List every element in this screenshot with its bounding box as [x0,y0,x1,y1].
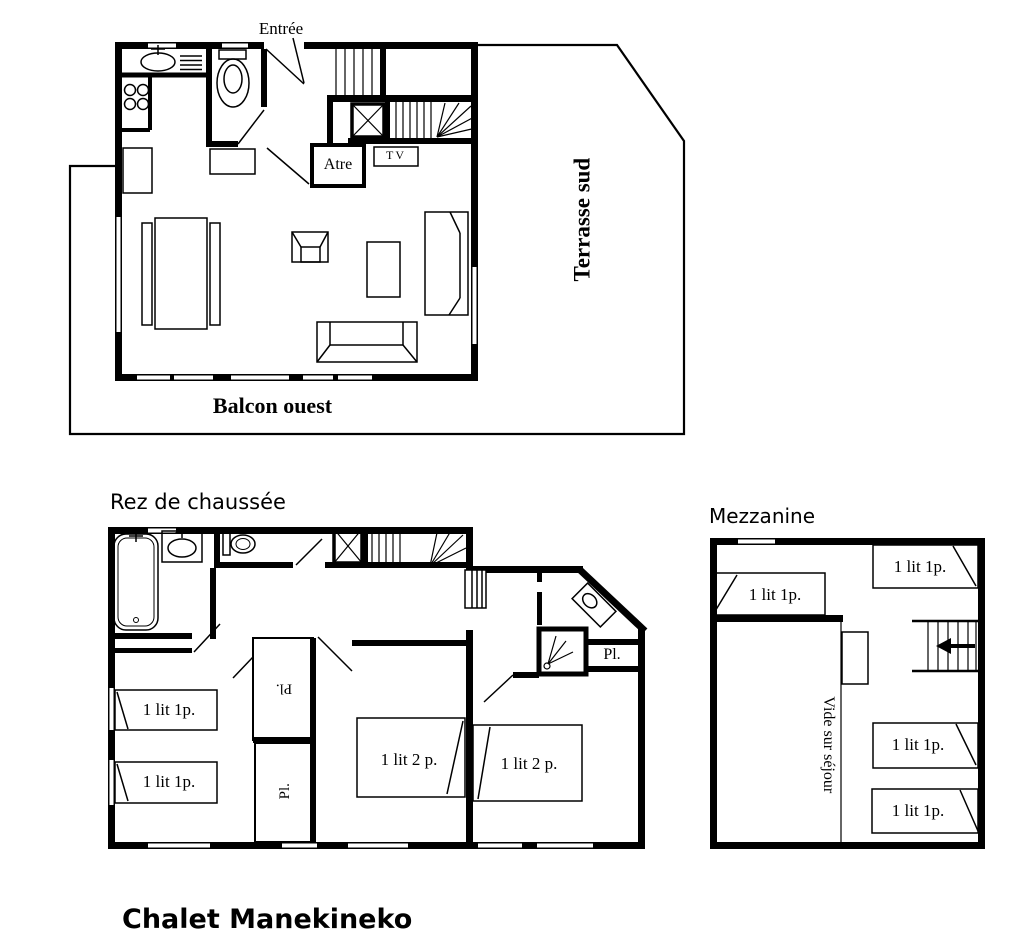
bed-single-a-label: 1 lit 1p. [725,586,825,605]
upper-outer-walls [115,42,478,381]
bed-double-1-label: 1 lit 2 p. [359,751,459,770]
entrance-door [266,38,309,184]
toilet [217,50,249,107]
terrace-label: Terrasse sud [569,140,594,300]
kitchen-cupboard [123,148,152,193]
tv-label: TV [374,149,418,162]
void-label: Vide sur séjour [819,680,837,810]
bathroom [114,528,255,630]
ground-floor-plan [108,527,645,849]
wc-room [206,49,267,174]
closets [253,638,314,842]
ground-floor-title: Rez de chaussée [110,491,370,514]
coffee-table [367,242,400,297]
closet-top-label: Pl. [264,680,304,697]
bed-single-1-label: 1 lit 1p. [119,701,219,720]
corner-washbasin [572,583,616,627]
shower [539,629,586,674]
chimney-flue [842,632,868,684]
bed-single-d-label: 1 lit 1p. [868,802,968,821]
bevel-wall [579,569,645,631]
entrance-label: Entrée [241,20,321,39]
sofa-south [317,322,417,362]
kitchen [122,45,207,193]
inner-window [465,570,486,608]
wc-door-leaf [238,110,264,144]
armchair [292,232,328,262]
ground-interior-walls [108,527,638,842]
sofa-east [425,212,468,315]
bed-single-c-label: 1 lit 1p. [868,736,968,755]
bed-double-2-label: 1 lit 2 p. [479,755,579,774]
fireplace-label: Atre [312,156,364,174]
direction-arrow-icon [936,638,975,654]
bed-single-2-label: 1 lit 1p. [119,773,219,792]
closet-right-label: Pl. [592,646,632,664]
page-title: Chalet Manekineko [122,905,462,935]
dish-rack [180,56,202,70]
hall-door-leaf [267,148,309,184]
dining-table [155,218,207,329]
stove-burners [125,85,149,110]
closet-bottom-label: Pl. [277,771,294,811]
ground-windows [110,529,594,848]
living-furniture [142,212,468,362]
bench-right [210,223,220,325]
hall-cabinet [210,149,255,174]
bathtub [114,534,158,630]
balcony-label: Balcon ouest [190,394,355,418]
mezzanine-title: Mezzanine [709,505,869,527]
toilet-ground [223,533,255,555]
mezzanine-window [738,540,775,544]
winder-steps [437,103,476,137]
bed-single-b-label: 1 lit 1p. [870,558,970,577]
mezzanine-staircase [912,621,984,671]
bench-left [142,223,152,325]
shower-spray [544,636,573,669]
upper-staircase [327,49,478,145]
floorplan-page: Entrée Atre TV Terrasse sud Balcon ouest… [0,0,1031,950]
